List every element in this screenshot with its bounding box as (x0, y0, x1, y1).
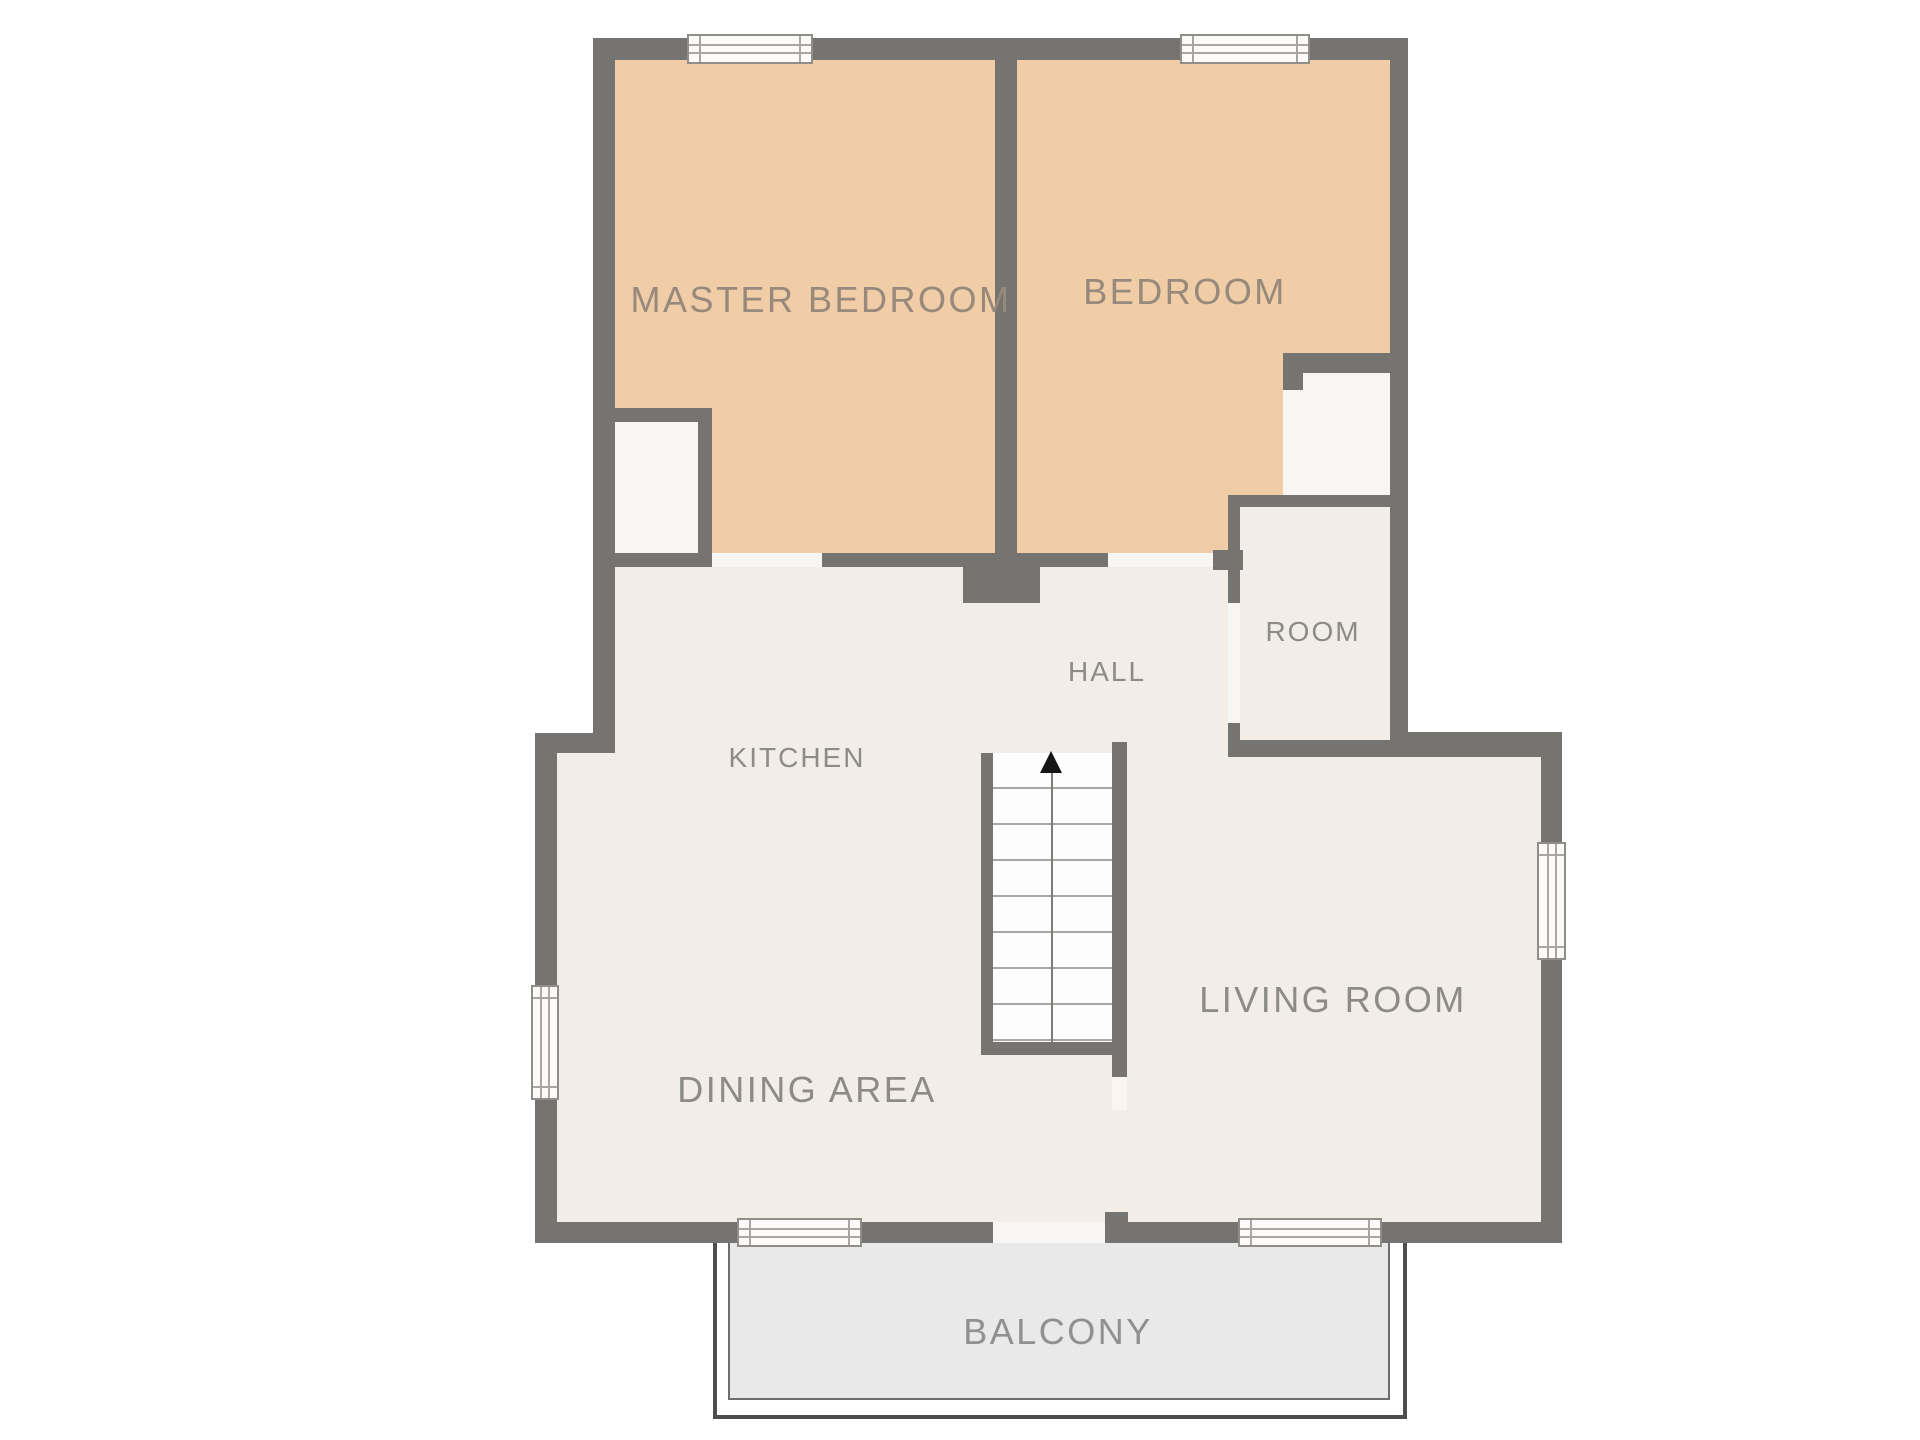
doorway-master-bedroom (712, 553, 822, 567)
wall-left-upper (593, 38, 615, 733)
stairs-up-arrow-icon (1040, 751, 1062, 773)
window-master-bedroom-icon (687, 34, 813, 64)
closet-master-bedroom (612, 420, 698, 553)
wall-stair-left (981, 753, 993, 1055)
wall-stair-bottom (981, 1042, 1113, 1055)
label-room: ROOM (1265, 618, 1360, 646)
label-bedroom: BEDROOM (1083, 274, 1287, 310)
doorway-bedroom (1108, 553, 1217, 567)
stairs-direction-line (1051, 772, 1053, 1042)
wall-bottom-a (535, 1222, 737, 1243)
floor-plan-canvas: MASTER BEDROOM BEDROOM ROOM HALL KITCHEN… (0, 0, 1920, 1440)
wall-right-lower-b (1541, 960, 1562, 1243)
label-kitchen: KITCHEN (729, 744, 866, 772)
window-bedroom-icon (1180, 34, 1310, 64)
wall-bedroom-closet-stub (1283, 353, 1303, 390)
wall-right-upper (1390, 38, 1408, 757)
wall-below-master-bedroom (593, 553, 712, 567)
wall-bottom-c (1128, 1222, 1238, 1243)
wall-living-room-top-a (1228, 740, 1390, 757)
window-living-room-bottom-icon (1238, 1218, 1382, 1247)
wall-room-left-upper (1228, 495, 1240, 603)
window-kitchen-icon (531, 985, 559, 1100)
wall-bottom-d (1382, 1222, 1562, 1243)
wall-room-left-lower (1228, 723, 1240, 743)
window-dining-area-icon (737, 1218, 862, 1247)
duct-block (963, 567, 1040, 603)
doorway-balcony (993, 1222, 1105, 1243)
wall-left-lower-b (535, 1095, 557, 1243)
wall-bottom-jamb (1105, 1212, 1128, 1243)
outside-mask (1408, 567, 1562, 732)
stair-wall-endcap (1112, 1077, 1127, 1110)
wall-left-jog (535, 733, 615, 753)
wall-stair-right (1112, 742, 1127, 1077)
closet-bedroom (1283, 373, 1390, 495)
wall-master-closet-right (698, 422, 712, 567)
label-dining-area: DINING AREA (677, 1072, 937, 1108)
wall-left-lower-a (535, 753, 557, 985)
label-hall: HALL (1068, 658, 1146, 686)
label-balcony: BALCONY (963, 1314, 1153, 1350)
label-master-bedroom: MASTER BEDROOM (630, 282, 1011, 318)
doorway-room (1228, 603, 1240, 723)
wall-room-top (1228, 495, 1390, 507)
window-living-room-right-icon (1537, 842, 1566, 960)
label-living-room: LIVING ROOM (1199, 982, 1467, 1018)
wall-living-room-top-b (1405, 732, 1562, 757)
wall-bottom-b (862, 1222, 993, 1243)
wall-master-closet-top (612, 408, 712, 422)
wall-below-bedrooms (822, 553, 1108, 567)
